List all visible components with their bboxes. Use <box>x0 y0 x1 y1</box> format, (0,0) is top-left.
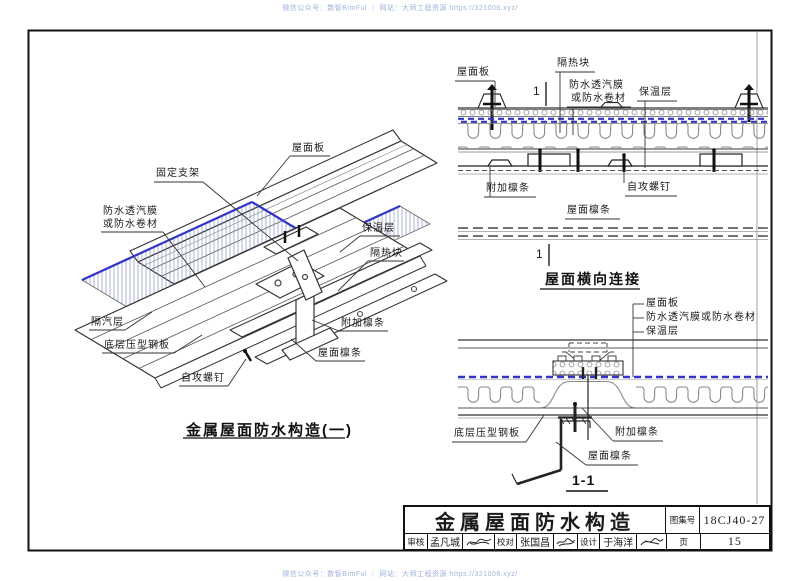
right-bottom-title: 1-1 <box>572 472 595 488</box>
sheet-line-art <box>0 0 800 581</box>
reviewer-name: 孟凡城 <box>427 534 463 549</box>
insulation-bubble-band <box>458 110 768 117</box>
rt-label-membrane-2: 或防水卷材 <box>571 94 626 105</box>
hidden-seam-cap <box>562 343 614 361</box>
checker-name: 张国昌 <box>516 534 554 549</box>
label-screw: 自攻螺钉 <box>181 374 225 385</box>
label-thermal-block: 隔热块 <box>370 249 403 260</box>
right-top-section-drawing <box>455 72 768 289</box>
atlas-number-label: 图集号 <box>665 507 699 533</box>
right-top-title: 屋面横向连接 <box>545 269 641 289</box>
label-membrane-1: 防水透汽膜 <box>103 207 158 218</box>
label-fixed-bracket: 固定支架 <box>156 169 200 180</box>
page-label: 页 <box>666 534 700 549</box>
label-added-purlin: 附加檩条 <box>341 319 385 330</box>
rb-label-insulation: 保温层 <box>646 327 679 338</box>
lower-purlin-dashed-rows <box>458 228 768 240</box>
atlas-number-value: 18CJ40-27 <box>699 507 769 533</box>
thermal-block-section <box>553 356 623 375</box>
membrane-dashed-blue <box>458 119 768 122</box>
rb-label-bottom-sheet: 底层压型钢板 <box>454 429 520 440</box>
check-label: 校对 <box>494 534 516 549</box>
rt-section-mark-top: 1 <box>533 85 540 98</box>
rt-label-roof-panel: 屋面板 <box>457 68 490 79</box>
rb-label-membrane: 防水透汽膜或防水卷材 <box>646 313 756 324</box>
right-bottom-section-drawing <box>452 304 768 491</box>
label-membrane-2: 或防水卷材 <box>103 220 158 231</box>
signature-scribble-2 <box>555 536 577 548</box>
rt-label-membrane-1: 防水透汽膜 <box>569 81 624 92</box>
label-vapor-barrier: 隔汽层 <box>91 318 124 329</box>
label-insulation: 保温层 <box>362 224 395 235</box>
left-diagram-title: 金属屋面防水构造(一) <box>186 419 353 440</box>
signature-scribble-1 <box>465 536 493 548</box>
reviewer-signature <box>462 534 494 549</box>
title-block-main-title: 金属屋面防水构造 <box>405 507 665 533</box>
signature-scribble-3 <box>639 536 665 548</box>
screw-3d <box>243 349 251 361</box>
rt-label-insulation: 保温层 <box>639 88 672 99</box>
rt-label-screw: 自攻螺钉 <box>627 183 671 194</box>
designer-signature <box>636 534 666 549</box>
purlin-profile <box>458 154 768 166</box>
left-axonometric-drawing <box>75 130 447 438</box>
rb-label-added-purlin: 附加檩条 <box>615 428 659 439</box>
page-number: 15 <box>700 534 769 549</box>
label-roof-panel: 屋面板 <box>292 144 325 155</box>
checker-signature <box>553 534 577 549</box>
rt-section-mark-bottom: 1 <box>536 248 543 261</box>
rb-label-roof-panel: 屋面板 <box>646 299 679 310</box>
title-block: 金属屋面防水构造 图集号 18CJ40-27 审核 孟凡城 校对 张国昌 设计 … <box>403 505 771 551</box>
review-label: 审核 <box>405 534 427 549</box>
design-label: 设计 <box>577 534 599 549</box>
rb-label-roof-purlin: 屋面檩条 <box>588 452 632 463</box>
rt-label-roof-purlin: 屋面檩条 <box>567 206 611 217</box>
rt-label-thermal-block: 隔热块 <box>557 59 590 70</box>
drawing-sheet-page: 微信公众号：数智BimFul ｜ 网站：大师工程资源 https://32100… <box>0 0 800 581</box>
label-roof-purlin: 屋面檩条 <box>318 349 362 360</box>
rt-label-added-purlin: 附加檩条 <box>486 184 530 195</box>
corrugated-deck-band <box>458 124 768 148</box>
label-bottom-sheet: 底层压型钢板 <box>104 341 170 352</box>
designer-name: 于海洋 <box>599 534 637 549</box>
